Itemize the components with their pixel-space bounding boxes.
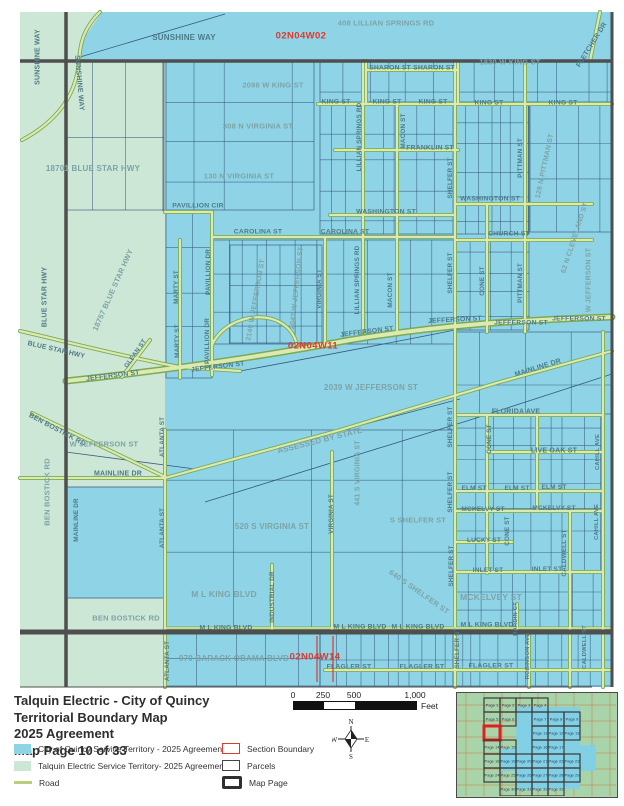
- inset-page-label: Page 18: [485, 759, 501, 764]
- inset-page-label: Page 2: [502, 703, 515, 708]
- inset-page-label: Page 5: [486, 717, 499, 722]
- map-page: SUNSHINE WAYSUNSHINE WAYSUNSHINE WAY408 …: [0, 0, 624, 806]
- legend-item-label: Section Boundary: [247, 744, 314, 754]
- legend-item: Parcels: [222, 757, 314, 774]
- talquin-swatch-icon: [14, 761, 31, 771]
- legend-title-line: Talquin Electric - City of Quincy: [14, 693, 210, 710]
- inset-page-label: Page 6: [502, 717, 515, 722]
- section-swatch-icon: [222, 743, 240, 754]
- scale-tick: 250: [316, 690, 330, 700]
- legend-item-label: Talquin Electric Service Territory- 2025…: [38, 761, 226, 771]
- inset-page-label: Page 32: [533, 787, 549, 792]
- legend-item: Section Boundary: [222, 740, 314, 757]
- compass-w: W: [332, 736, 338, 744]
- legend-title-line: Territorial Boundary Map: [14, 710, 210, 727]
- inset-page-label: Page 4: [534, 703, 547, 708]
- inset-page-label: Page 11: [533, 731, 548, 736]
- inset-page-label: Page 19: [501, 759, 517, 764]
- inset-page-label: Page 33: [549, 787, 565, 792]
- inset-page-label: Page 21: [533, 759, 549, 764]
- inset-page-label: Page 16: [533, 745, 549, 750]
- inset-page-label: Page 30: [501, 787, 517, 792]
- talquin-territory-left-strip: [20, 12, 68, 687]
- road-swatch-icon: [14, 781, 32, 784]
- parcels-swatch-icon: [222, 760, 240, 771]
- territory-map-graphic: [0, 0, 624, 690]
- scale-tick-labels: 02505001,000: [293, 690, 433, 701]
- quincy-swatch-icon: [14, 744, 31, 754]
- inset-page-label: Page 12: [549, 731, 565, 736]
- talquin-territory-west-block: [66, 61, 165, 487]
- legend-item: Talquin Electric Service Territory- 2025…: [14, 757, 226, 774]
- inset-page-label: Page 28: [549, 773, 565, 778]
- legend-items-right: Section BoundaryParcelsMap Page: [222, 740, 314, 791]
- inset-page-label: Page 23: [565, 759, 581, 764]
- legend-item-label: Parcels: [247, 761, 275, 771]
- compass-s: S: [349, 753, 353, 760]
- compass-rose: NSWE: [332, 718, 370, 765]
- legend-items-left: City of Quincy Service Territory - 2025 …: [14, 740, 226, 791]
- compass-e: E: [365, 736, 369, 744]
- scale-unit-label: Feet: [421, 701, 438, 711]
- legend-item-label: City of Quincy Service Territory - 2025 …: [38, 744, 224, 754]
- inset-page-label: Page 26: [517, 773, 533, 778]
- inset-page-label: Page 1: [486, 703, 499, 708]
- inset-page-label: Page 17: [549, 745, 565, 750]
- inset-page-label: Page 3: [518, 703, 531, 708]
- inset-page-label: Page 15: [501, 745, 517, 750]
- legend-item: Map Page: [222, 774, 314, 791]
- talquin-territory-southwest-block: [66, 598, 165, 687]
- inset-page-label: Page 7: [534, 717, 547, 722]
- inset-page-label: Page 13: [565, 731, 581, 736]
- legend-item-label: Road: [39, 778, 59, 788]
- inset-page-label: Page 22: [549, 759, 565, 764]
- scale-bar: [293, 701, 417, 710]
- inset-page-label: Page 25: [501, 773, 517, 778]
- map-canvas: SUNSHINE WAYSUNSHINE WAYSUNSHINE WAY408 …: [0, 0, 624, 690]
- scale-bar-group: 02505001,000 Feet: [293, 690, 433, 710]
- scale-tick: 0: [291, 690, 296, 700]
- inset-page-label: Page 20: [517, 759, 533, 764]
- scale-tick: 500: [347, 690, 361, 700]
- inset-page-label: Page 9: [566, 717, 579, 722]
- inset-page-label: Page 31: [517, 787, 533, 792]
- legend-item: City of Quincy Service Territory - 2025 …: [14, 740, 226, 757]
- mappage-swatch-icon: [222, 776, 242, 789]
- legend-panel: Talquin Electric - City of QuincyTerrito…: [0, 690, 624, 806]
- inset-overview-map: Page 1Page 2Page 3Page 4Page 5Page 6Page…: [456, 692, 618, 798]
- inset-page-label: Page 29: [565, 773, 581, 778]
- inset-page-label: Page 8: [550, 717, 563, 722]
- legend-item: Road: [14, 774, 226, 791]
- legend-item-label: Map Page: [249, 778, 288, 788]
- inset-page-label: Page 14: [485, 745, 501, 750]
- compass-n: N: [348, 718, 353, 726]
- inset-page-label: Page 27: [533, 773, 549, 778]
- inset-page-label: Page 24: [485, 773, 501, 778]
- scale-tick: 1,000: [404, 690, 425, 700]
